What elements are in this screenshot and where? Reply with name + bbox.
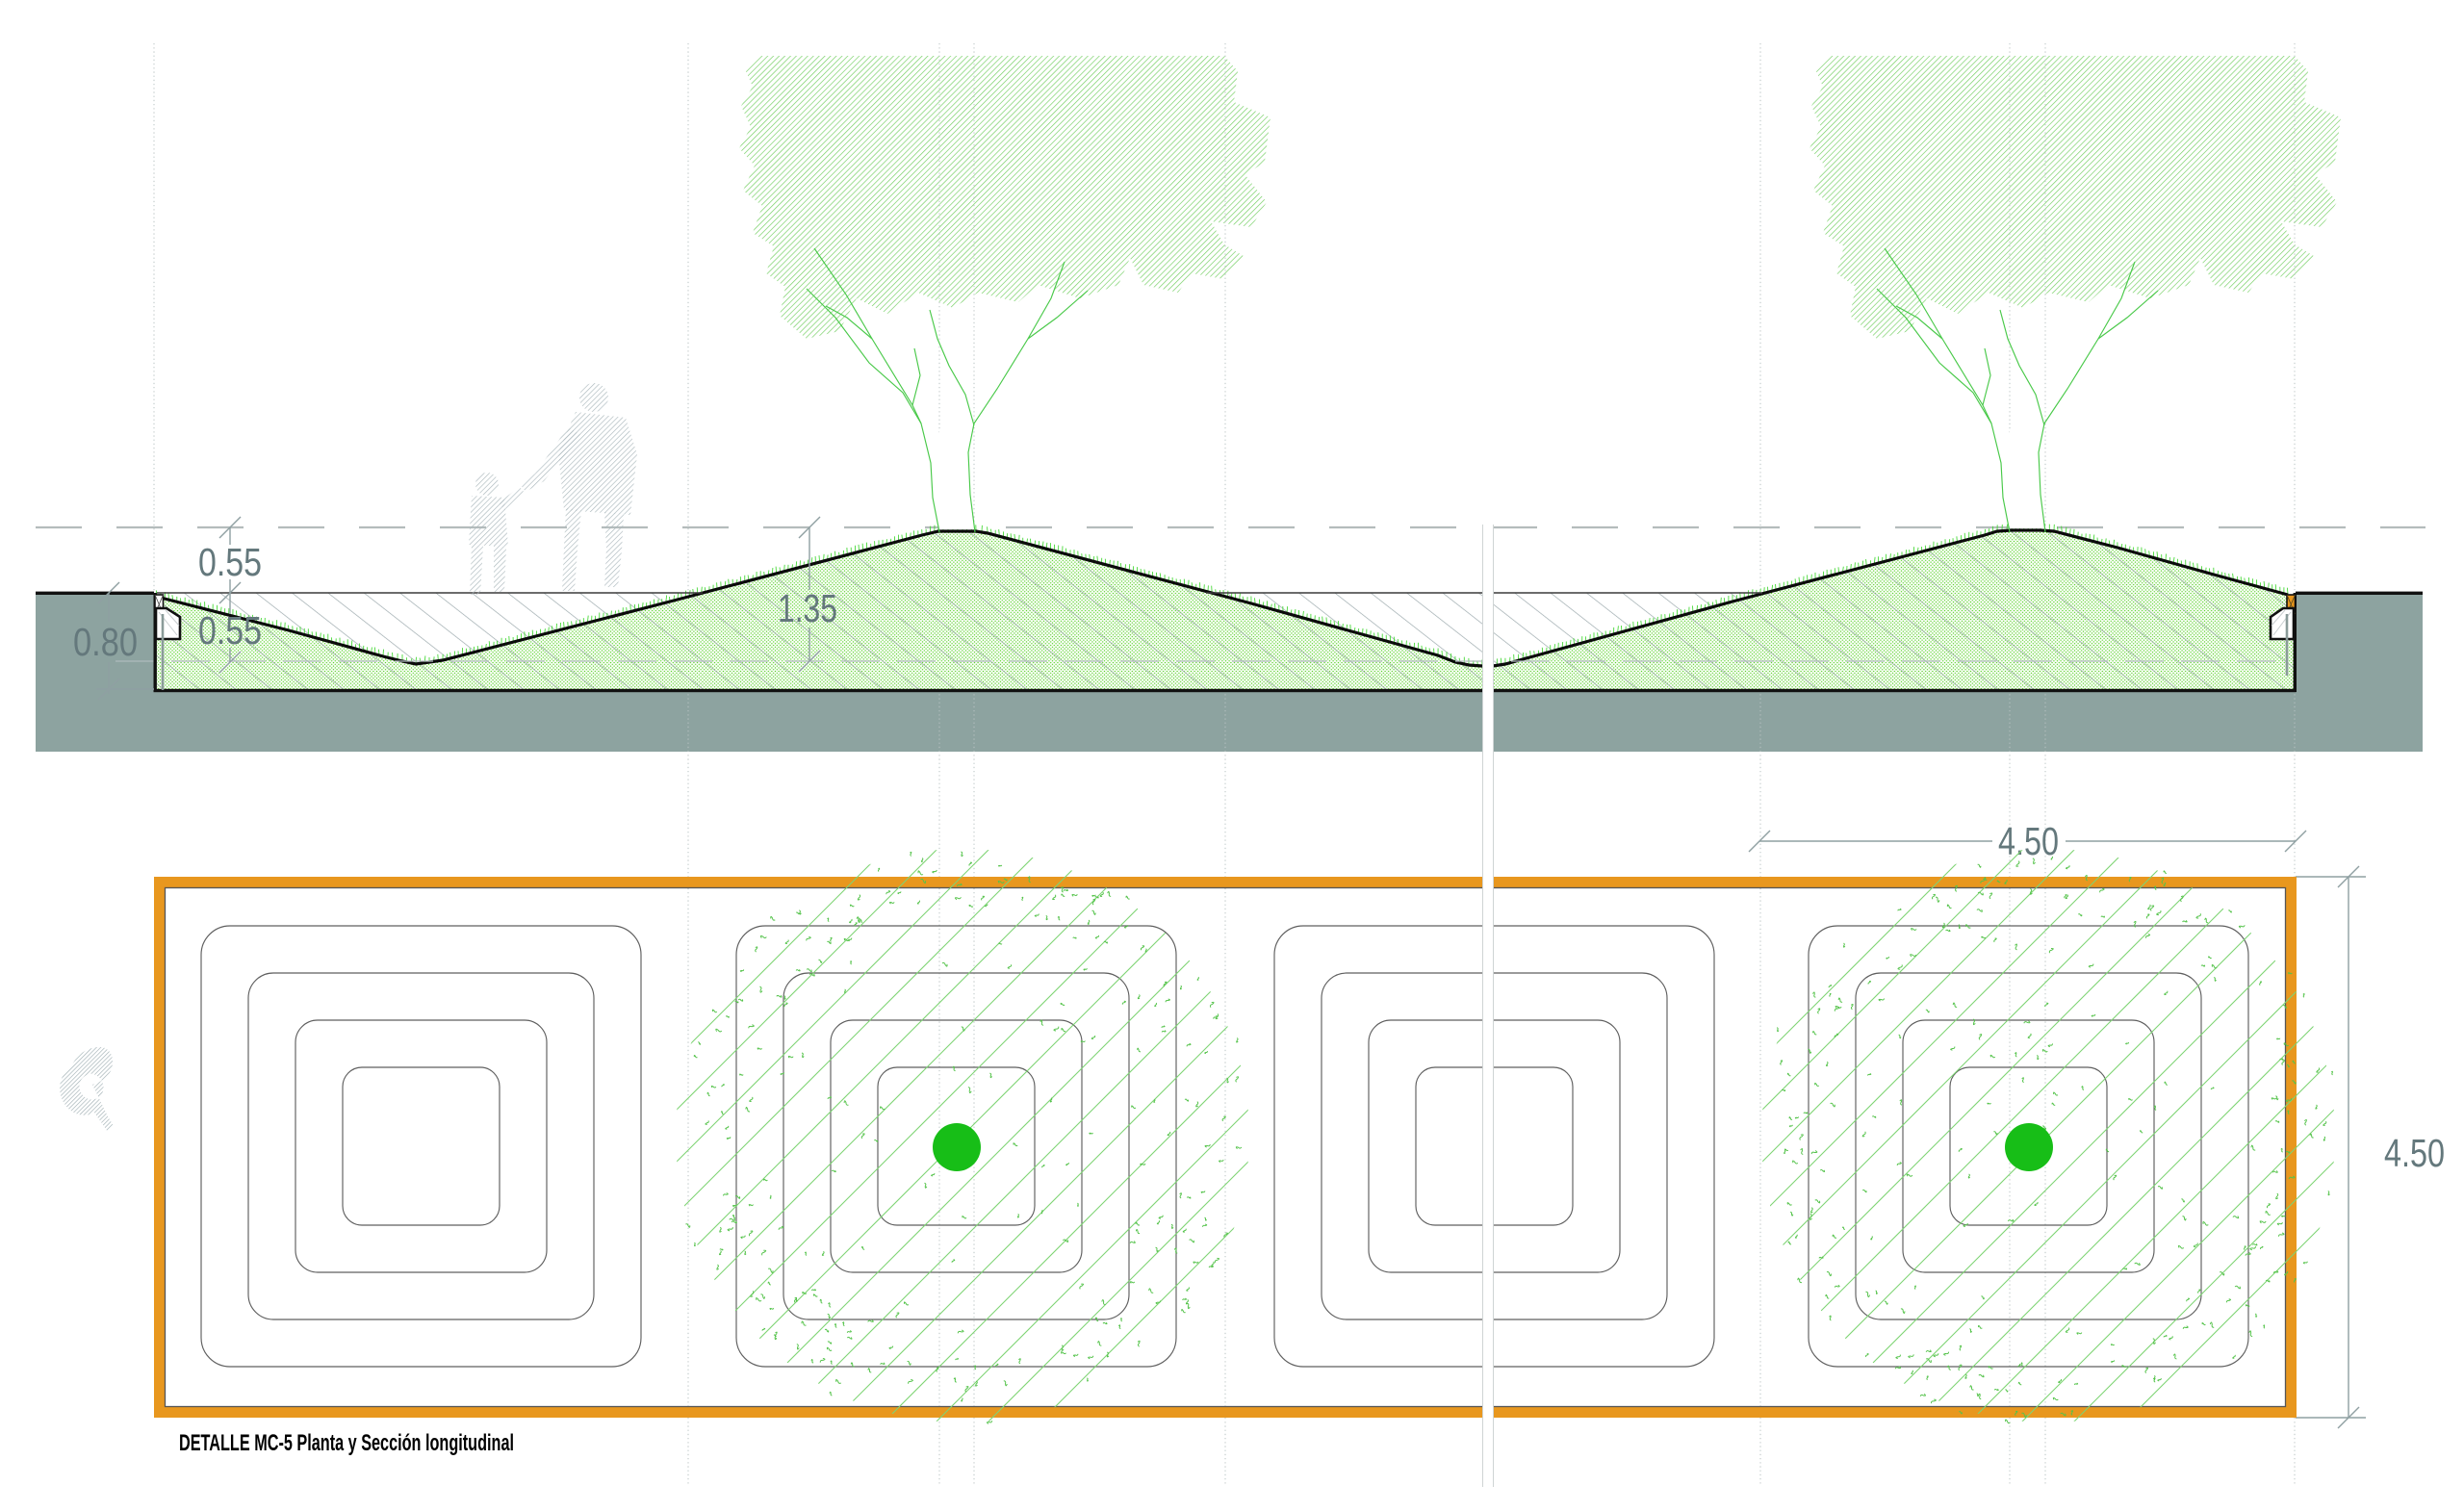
svg-text:1.35: 1.35 xyxy=(778,586,837,630)
svg-text:0.55: 0.55 xyxy=(198,540,262,584)
svg-text:0.80: 0.80 xyxy=(73,620,138,664)
svg-text:0.55: 0.55 xyxy=(198,608,262,653)
svg-text:4.50: 4.50 xyxy=(2384,1131,2445,1175)
svg-text:4.50: 4.50 xyxy=(1998,819,2059,863)
svg-text:DETALLE MC-5 Planta y Sección: DETALLE MC-5 Planta y Sección longitudin… xyxy=(179,1430,514,1456)
